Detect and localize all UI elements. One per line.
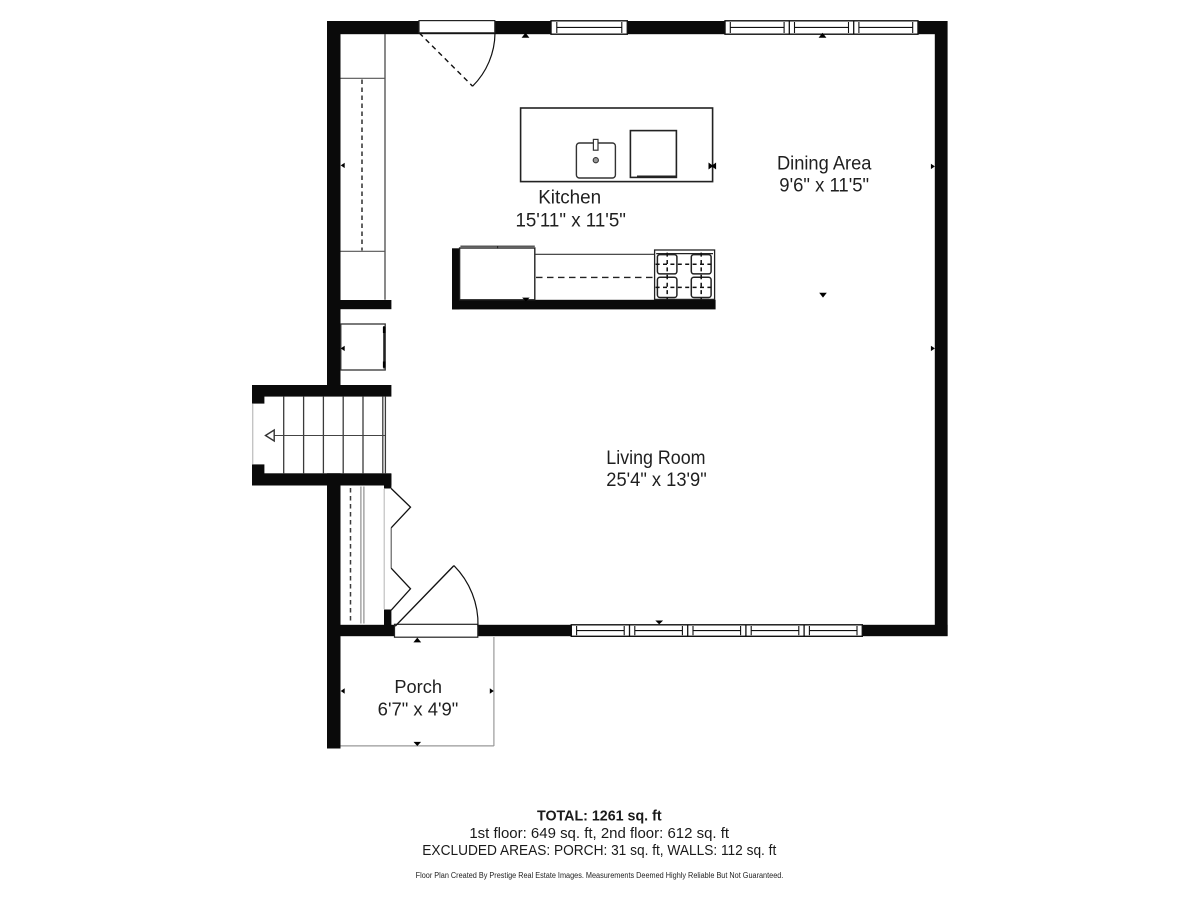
svg-text:Dining Area: Dining Area xyxy=(777,153,872,174)
svg-text:1st floor: 649 sq. ft, 2nd flo: 1st floor: 649 sq. ft, 2nd floor: 612 sq… xyxy=(469,825,729,842)
svg-text:Porch: Porch xyxy=(394,677,442,697)
svg-text:15'11" x 11'5": 15'11" x 11'5" xyxy=(515,210,626,231)
svg-text:Kitchen: Kitchen xyxy=(538,186,601,208)
svg-text:Floor Plan Created By Prestige: Floor Plan Created By Prestige Real Esta… xyxy=(416,871,784,880)
svg-text:6'7" x 4'9": 6'7" x 4'9" xyxy=(378,699,459,719)
svg-text:9'6" x 11'5": 9'6" x 11'5" xyxy=(779,175,869,196)
svg-text:25'4" x 13'9": 25'4" x 13'9" xyxy=(606,470,706,491)
svg-text:Living Room: Living Room xyxy=(606,448,705,469)
svg-text:TOTAL: 1261 sq. ft: TOTAL: 1261 sq. ft xyxy=(537,808,662,825)
svg-text:EXCLUDED AREAS: PORCH: 31 sq.: EXCLUDED AREAS: PORCH: 31 sq. ft, WALLS:… xyxy=(422,842,777,859)
